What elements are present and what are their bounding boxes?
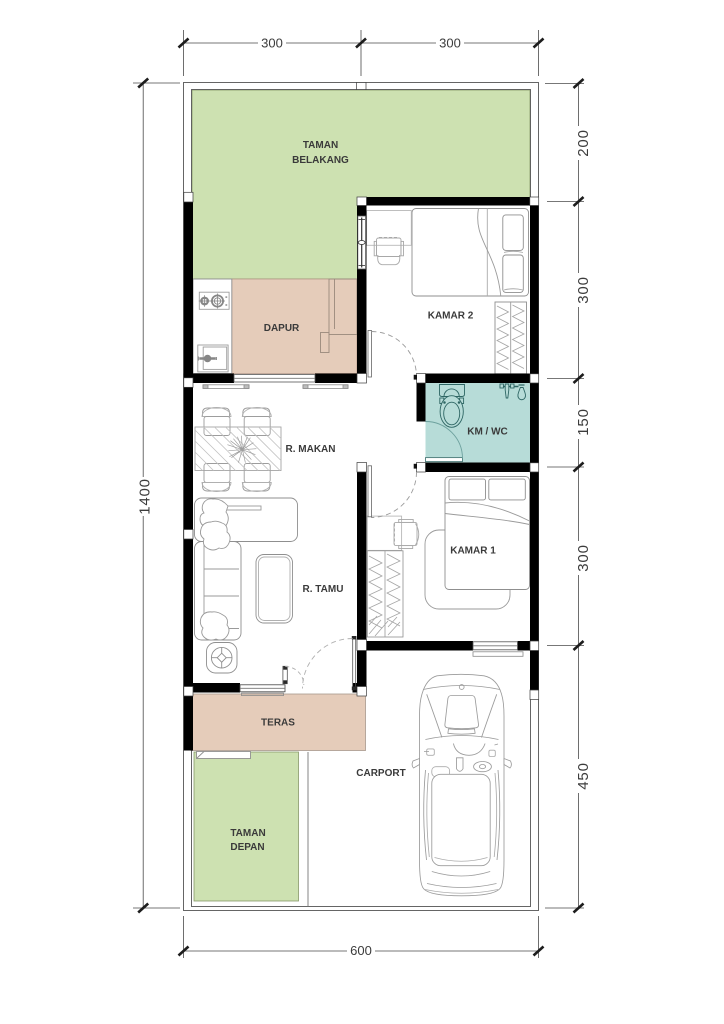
svg-text:CARPORT: CARPORT [356,768,405,779]
svg-text:TERAS: TERAS [261,718,295,729]
svg-text:TAMAN: TAMAN [230,828,265,839]
svg-text:R. TAMU: R. TAMU [303,584,344,595]
svg-text:KAMAR 2: KAMAR 2 [428,311,474,322]
svg-text:300: 300 [439,36,461,51]
svg-text:DAPUR: DAPUR [264,323,300,334]
svg-text:DEPAN: DEPAN [230,842,264,853]
svg-text:300: 300 [261,36,283,51]
svg-text:KAMAR 1: KAMAR 1 [450,546,496,557]
svg-text:300: 300 [575,544,592,571]
svg-text:R. MAKAN: R. MAKAN [286,444,336,455]
svg-text:150: 150 [575,408,592,435]
svg-text:600: 600 [350,943,372,958]
svg-text:200: 200 [575,129,592,156]
svg-text:300: 300 [575,276,592,303]
svg-text:BELAKANG: BELAKANG [292,155,349,166]
svg-text:KM / WC: KM / WC [467,427,508,438]
svg-text:450: 450 [575,762,592,789]
svg-text:1400: 1400 [137,478,154,515]
svg-text:TAMAN: TAMAN [303,140,338,151]
